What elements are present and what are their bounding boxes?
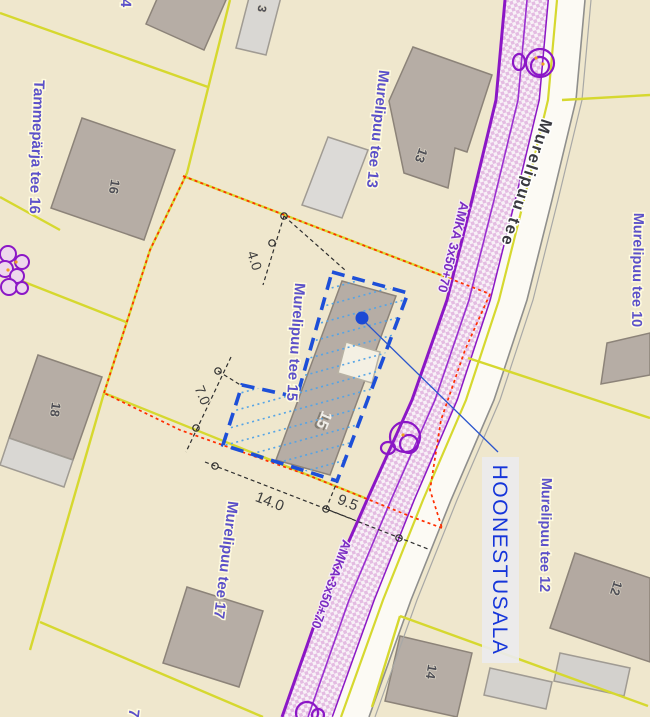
- parcel-label-murelipuu-12: Murelipuu tee 12: [536, 478, 554, 593]
- parcel-label-partial-top: 4: [117, 0, 134, 8]
- parcel-label-partial-bottom: 7: [125, 708, 143, 717]
- building-area-label: HOONESTUSALA: [488, 465, 511, 656]
- map-canvas[interactable]: 15 15 HOONESTUSALA 4.0 7.0 14.0 9.5 13 1…: [0, 0, 650, 717]
- building-number-16: 16: [106, 178, 123, 195]
- parcel-label-murelipuu-10: Murelipuu tee 10: [628, 213, 646, 328]
- building-number-18: 18: [47, 401, 64, 417]
- building-area-point: [356, 312, 369, 325]
